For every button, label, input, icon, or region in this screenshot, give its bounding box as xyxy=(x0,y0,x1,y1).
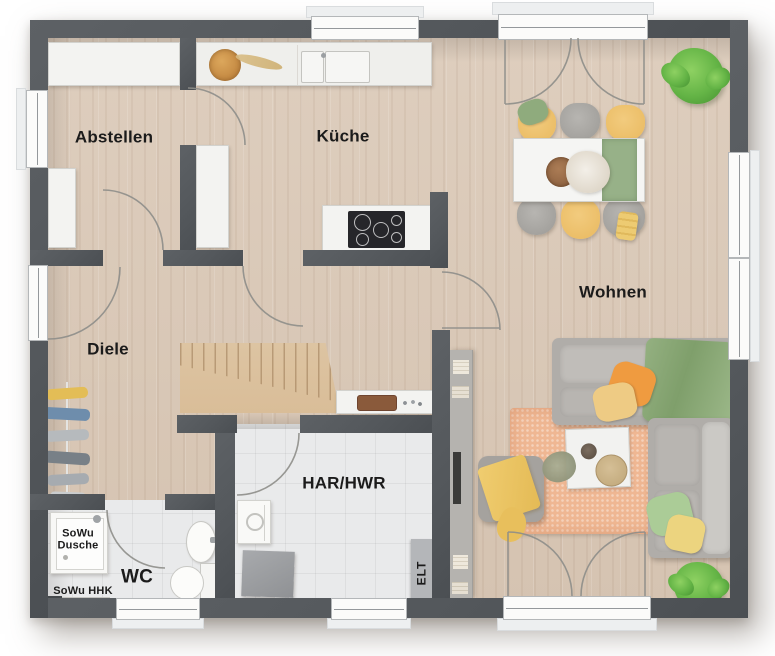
label-elt: ELT xyxy=(415,561,428,586)
deco-dried-sprig xyxy=(235,51,284,72)
wall-abstellen-kueche-lower xyxy=(180,145,196,257)
sill-right xyxy=(750,150,760,362)
burner xyxy=(354,214,371,231)
tray xyxy=(357,395,397,411)
toilet-bowl xyxy=(170,566,204,600)
storage-cabinet-top xyxy=(48,42,180,86)
window-wc xyxy=(116,598,200,620)
books xyxy=(453,555,468,569)
pillow-cream xyxy=(591,380,640,424)
toilet xyxy=(170,563,216,603)
table-tray xyxy=(595,454,628,487)
label-wohnen: Wohnen xyxy=(579,282,647,301)
washing-machine xyxy=(237,500,271,544)
label-abstellen: Abstellen xyxy=(75,127,153,146)
label-heater: SoWu HHK xyxy=(53,585,112,597)
coat-rack-rail xyxy=(66,382,68,504)
coat-gray xyxy=(45,429,90,442)
books xyxy=(452,582,468,594)
label-wc: WC xyxy=(121,566,153,587)
label-kueche: Küche xyxy=(317,126,370,145)
tv-sideboard xyxy=(450,350,473,598)
dining-chair xyxy=(517,198,556,235)
kitchen-counter xyxy=(196,42,432,86)
sofa-side xyxy=(648,418,734,558)
kitchen-island xyxy=(322,205,432,252)
table-vase xyxy=(580,443,597,460)
dining-chair xyxy=(606,105,645,141)
dining-chair xyxy=(561,199,600,239)
wall-wc-har xyxy=(215,433,235,598)
window-kitchen xyxy=(311,16,419,40)
utility-box xyxy=(241,550,295,598)
coat-light-gray xyxy=(47,473,90,486)
coat-yellow xyxy=(46,387,89,401)
dining-chair xyxy=(560,103,600,140)
counter-divider xyxy=(297,45,298,85)
window-right-upper xyxy=(728,152,750,258)
centerpiece-flowers xyxy=(566,151,610,193)
coat-blue xyxy=(44,407,91,421)
dining-table xyxy=(513,138,645,202)
wall-kueche-wohnen-stub xyxy=(430,192,448,268)
burner xyxy=(391,215,402,226)
label-har: HAR/HWR xyxy=(302,473,386,492)
shower-head xyxy=(93,515,101,523)
washer-panel xyxy=(264,505,265,541)
window-har xyxy=(331,598,407,620)
shower-drain xyxy=(63,555,68,560)
cooktop xyxy=(348,211,405,248)
terrace-door-bottom xyxy=(503,596,651,620)
armchair xyxy=(478,456,544,522)
washer-door xyxy=(246,513,264,531)
sofa-main xyxy=(552,338,734,425)
wall-mid-lower xyxy=(432,330,450,598)
burner xyxy=(356,233,369,246)
storage-cabinet-left xyxy=(48,168,76,248)
wall-under-stairs-left xyxy=(177,415,237,433)
wall-diele-wc-left xyxy=(30,494,105,510)
window-abstellen xyxy=(26,90,48,168)
wall-hall-top-mid xyxy=(163,250,243,266)
plant-corner-top xyxy=(668,48,724,104)
coffee-table xyxy=(565,427,631,489)
sink-faucet xyxy=(321,53,326,58)
kitchen-tall-cabinet xyxy=(196,145,229,248)
entrance-door xyxy=(28,265,48,341)
wall-hall-top-left xyxy=(30,250,103,266)
wall-under-stairs-right xyxy=(300,415,432,433)
wall-diele-wc-right xyxy=(165,494,215,510)
burner xyxy=(391,232,402,243)
label-shower: SoWu Dusche xyxy=(58,528,99,553)
wall-hall-top-right xyxy=(303,250,448,266)
wall-abstellen-kueche-upper xyxy=(180,38,196,90)
sink-basin-large xyxy=(325,51,370,83)
coat-dark xyxy=(44,450,91,465)
sill-abstellen xyxy=(16,88,26,170)
keys xyxy=(401,398,425,409)
tv-screen xyxy=(453,452,461,504)
label-diele: Diele xyxy=(87,339,129,358)
chair-towel-yellow xyxy=(615,211,639,242)
window-right-lower xyxy=(728,258,750,360)
stair-treads xyxy=(180,343,340,413)
hall-shelf xyxy=(336,390,433,414)
coat-rack xyxy=(44,382,92,504)
sofa-side-seat xyxy=(654,424,700,486)
floor-plan-canvas: Abstellen Küche Wohnen Diele WC HAR/HWR … xyxy=(0,0,775,656)
burner xyxy=(373,222,389,238)
terrace-door-top xyxy=(498,14,648,40)
books xyxy=(452,386,469,398)
books xyxy=(453,360,469,374)
staircase xyxy=(180,343,340,413)
sofa-side-back xyxy=(702,422,730,554)
